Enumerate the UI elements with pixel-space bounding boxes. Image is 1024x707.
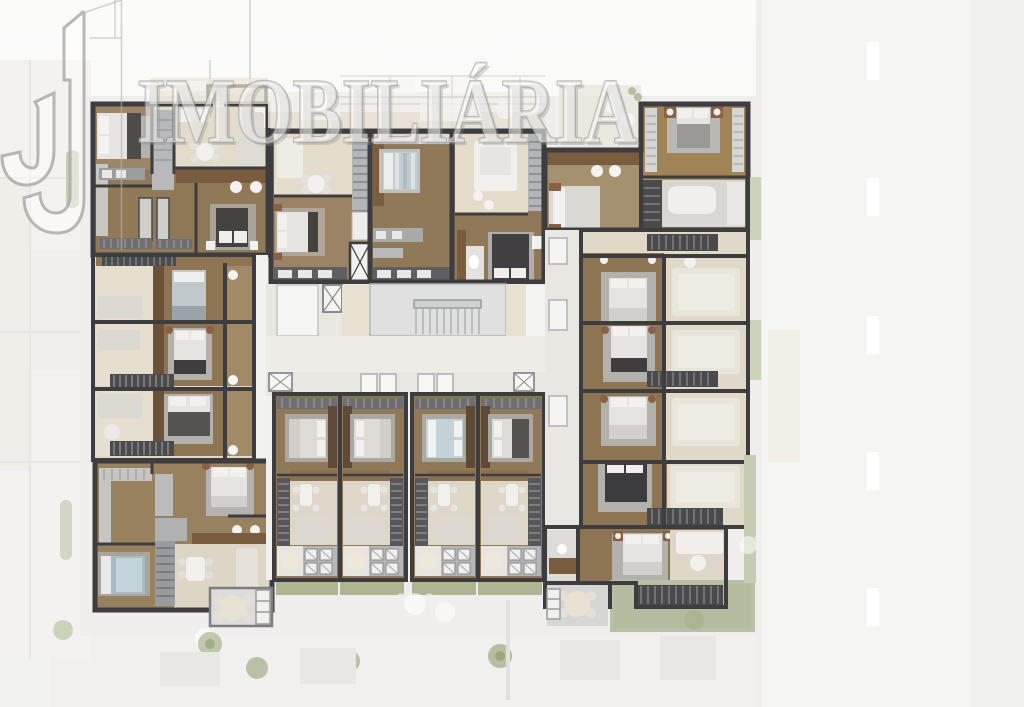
svg-text:IMOBILIÁRIA: IMOBILIÁRIA <box>137 60 637 162</box>
